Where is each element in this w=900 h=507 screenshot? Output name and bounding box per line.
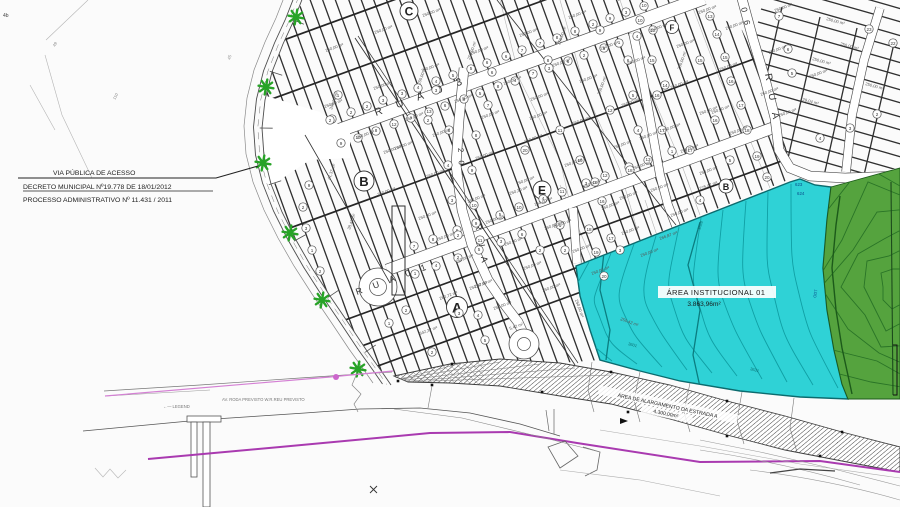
svg-text:17: 17 <box>608 236 614 241</box>
svg-text:7: 7 <box>532 71 535 76</box>
svg-text:22: 22 <box>890 41 896 46</box>
svg-text:F: F <box>670 24 675 33</box>
svg-text:1: 1 <box>414 271 417 276</box>
svg-text:6: 6 <box>444 103 447 108</box>
svg-text:2: 2 <box>405 308 408 313</box>
svg-text:5: 5 <box>452 73 455 78</box>
svg-text:20: 20 <box>601 274 607 279</box>
svg-text:16: 16 <box>728 79 734 84</box>
svg-text:AV. RODA PREVISTO W.R.REU PREV: AV. RODA PREVISTO W.R.REU PREVISTO <box>222 397 305 402</box>
svg-text:10: 10 <box>471 203 477 208</box>
svg-text:←— LEGEND: ←— LEGEND <box>163 404 190 409</box>
svg-text:3: 3 <box>382 98 385 103</box>
svg-text:20: 20 <box>764 175 770 180</box>
svg-text:5: 5 <box>470 66 473 71</box>
svg-text:DECRETO MUNICIPAL Nº19.778 DE: DECRETO MUNICIPAL Nº19.778 DE 18/01/2012 <box>23 184 172 191</box>
svg-text:1: 1 <box>311 248 314 253</box>
svg-text:6: 6 <box>505 54 508 59</box>
svg-text:9: 9 <box>471 168 474 173</box>
svg-text:15: 15 <box>722 55 728 60</box>
svg-text:3.863,96m²: 3.863,96m² <box>687 301 721 308</box>
svg-text:2: 2 <box>350 110 353 115</box>
svg-text:16: 16 <box>654 93 660 98</box>
svg-text:12: 12 <box>391 122 397 127</box>
svg-text:8: 8 <box>375 128 378 133</box>
svg-text:2: 2 <box>583 53 586 58</box>
svg-text:20: 20 <box>522 148 528 153</box>
svg-text:B: B <box>723 182 730 192</box>
svg-text:8: 8 <box>432 237 435 242</box>
svg-text:7: 7 <box>487 103 490 108</box>
svg-text:5: 5 <box>478 247 481 252</box>
svg-text:11: 11 <box>558 128 563 133</box>
svg-text:2: 2 <box>329 118 332 123</box>
svg-text:8: 8 <box>475 133 478 138</box>
svg-text:4: 4 <box>637 128 640 133</box>
svg-text:15: 15 <box>697 58 703 63</box>
svg-text:2: 2 <box>302 205 305 210</box>
svg-text:2: 2 <box>427 118 430 123</box>
svg-text:3: 3 <box>451 198 454 203</box>
svg-text:13: 13 <box>707 14 713 19</box>
svg-text:7: 7 <box>539 41 542 46</box>
svg-text:5: 5 <box>479 91 482 96</box>
svg-text:3: 3 <box>849 126 852 131</box>
svg-text:12: 12 <box>602 173 608 178</box>
svg-text:17: 17 <box>738 103 744 108</box>
svg-text:3: 3 <box>458 311 461 316</box>
svg-text:10: 10 <box>637 18 643 23</box>
svg-text:9: 9 <box>308 183 311 188</box>
svg-text:7: 7 <box>413 244 416 249</box>
svg-text:PROCESSO ADMINISTRATIVO Nº 11.: PROCESSO ADMINISTRATIVO Nº 11.431 / 2011 <box>23 197 172 204</box>
svg-text:9: 9 <box>340 141 343 146</box>
svg-text:2: 2 <box>564 248 567 253</box>
svg-text:ÁREA INSTITUCIONAL 01: ÁREA INSTITUCIONAL 01 <box>667 288 766 297</box>
svg-text:3: 3 <box>435 88 438 93</box>
svg-text:4: 4 <box>636 34 639 39</box>
svg-text:4: 4 <box>477 313 480 318</box>
svg-text:2: 2 <box>876 112 879 117</box>
svg-text:624: 624 <box>797 191 805 196</box>
svg-text:19: 19 <box>593 250 599 255</box>
svg-text:16: 16 <box>599 199 605 204</box>
svg-text:16: 16 <box>712 118 718 123</box>
svg-text:4b: 4b <box>3 13 9 19</box>
svg-text:23: 23 <box>866 27 872 32</box>
svg-text:3: 3 <box>305 226 308 231</box>
svg-text:6: 6 <box>787 47 790 52</box>
svg-text:2: 2 <box>539 248 542 253</box>
svg-text:4: 4 <box>435 79 438 84</box>
svg-text:8: 8 <box>547 58 550 63</box>
svg-text:3: 3 <box>619 248 622 253</box>
svg-text:9: 9 <box>609 16 612 21</box>
svg-text:3: 3 <box>625 10 628 15</box>
svg-text:12: 12 <box>607 108 613 113</box>
svg-text:C: C <box>405 5 414 19</box>
svg-text:B: B <box>359 174 368 189</box>
svg-text:3: 3 <box>548 66 551 71</box>
svg-text:9: 9 <box>599 28 602 33</box>
svg-text:15: 15 <box>649 58 655 63</box>
svg-text:10: 10 <box>641 3 647 8</box>
svg-text:2 0: 2 0 <box>456 148 466 169</box>
svg-text:7: 7 <box>521 48 524 53</box>
svg-text:4: 4 <box>699 198 702 203</box>
svg-text:5: 5 <box>791 71 794 76</box>
svg-text:4: 4 <box>435 263 438 268</box>
svg-text:18: 18 <box>586 227 592 232</box>
svg-text:2: 2 <box>592 22 595 27</box>
svg-text:VIA PÚBLICA DE ACESSO: VIA PÚBLICA DE ACESSO <box>53 168 135 177</box>
svg-text:4: 4 <box>819 136 822 141</box>
svg-text:13: 13 <box>426 109 432 114</box>
svg-text:6: 6 <box>486 60 489 65</box>
svg-text:2: 2 <box>457 233 460 238</box>
svg-text:2: 2 <box>319 269 322 274</box>
svg-text:3: 3 <box>401 91 404 96</box>
svg-text:19: 19 <box>754 154 760 159</box>
svg-text:623: 623 <box>795 182 803 187</box>
svg-text:5: 5 <box>729 158 732 163</box>
svg-text:6: 6 <box>491 70 494 75</box>
svg-text:11: 11 <box>478 238 483 243</box>
svg-text:5: 5 <box>484 338 487 343</box>
svg-text:2: 2 <box>431 350 434 355</box>
svg-text:9: 9 <box>475 221 478 226</box>
svg-text:7: 7 <box>778 14 781 19</box>
svg-text:3: 3 <box>500 239 503 244</box>
svg-text:2: 2 <box>366 104 369 109</box>
svg-text:10: 10 <box>516 205 522 210</box>
svg-text:11: 11 <box>560 189 565 194</box>
svg-text:8: 8 <box>574 29 577 34</box>
svg-text:4: 4 <box>447 163 450 168</box>
svg-text:14: 14 <box>662 83 668 88</box>
svg-text:14: 14 <box>714 32 720 37</box>
svg-text:1: 1 <box>671 149 674 154</box>
svg-text:1: 1 <box>388 321 391 326</box>
svg-text:8: 8 <box>497 84 500 89</box>
